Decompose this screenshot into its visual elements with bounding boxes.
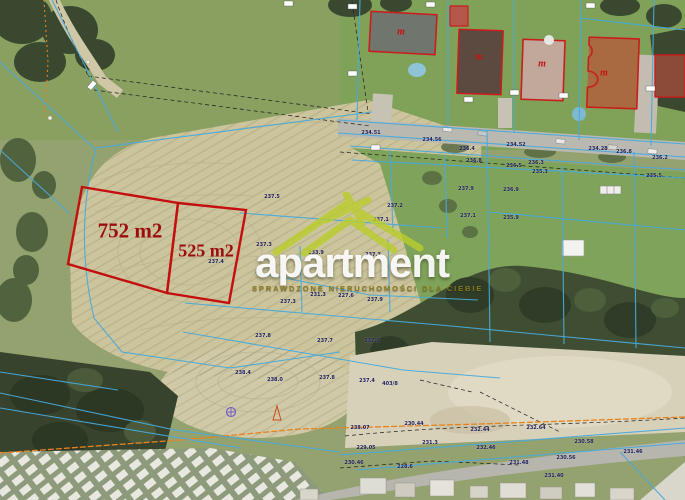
- plot-area-label-525: 525 m2: [178, 241, 234, 262]
- agency-watermark: apartment SPRAWDZONE NIERUCHOMOŚCI DLA C…: [252, 190, 452, 300]
- watermark-tagline-text: SPRAWDZONE NIERUCHOMOŚCI DLA CIEBIE: [252, 284, 452, 293]
- aerial-map-screenshot: 237.5237.2237.1237.3233.9237.3231.3227.6…: [0, 0, 685, 500]
- plot-area-label-752: 752 m2: [98, 219, 163, 244]
- watermark-brand-text: apartment: [252, 242, 452, 284]
